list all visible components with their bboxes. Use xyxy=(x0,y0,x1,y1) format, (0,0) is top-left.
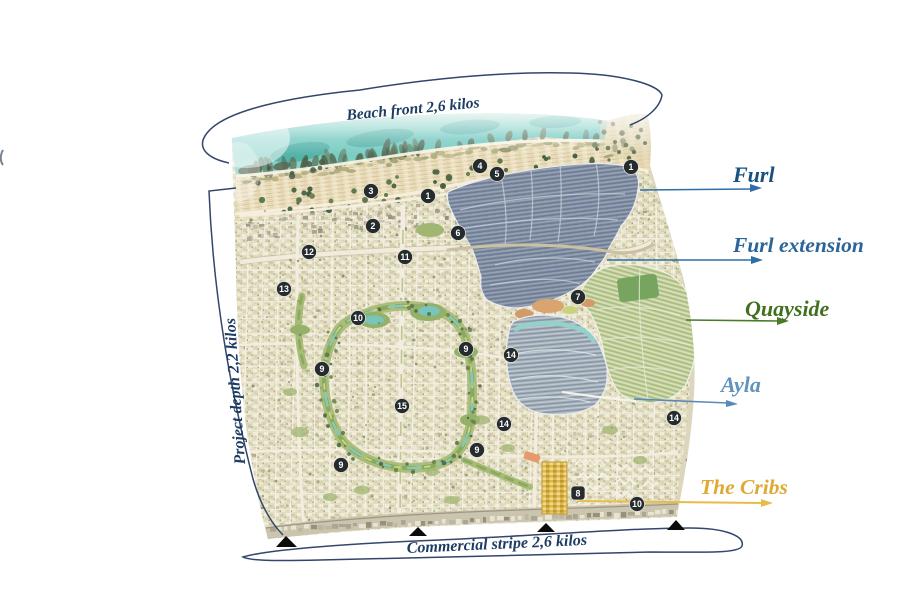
svg-text:14: 14 xyxy=(669,413,679,423)
svg-text:Furl extension: Furl extension xyxy=(732,233,864,257)
svg-text:14: 14 xyxy=(499,419,509,429)
svg-text:12: 12 xyxy=(304,247,314,257)
svg-text:10: 10 xyxy=(632,499,642,509)
svg-text:Commercial stripe 2,6 kilos: Commercial stripe 2,6 kilos xyxy=(406,532,587,557)
svg-text:3: 3 xyxy=(369,186,374,196)
svg-text:4: 4 xyxy=(478,161,483,171)
svg-text:Furl: Furl xyxy=(732,162,775,187)
svg-text:14: 14 xyxy=(506,350,516,360)
svg-text:2: 2 xyxy=(371,221,376,231)
svg-text:13: 13 xyxy=(279,284,289,294)
svg-text:9: 9 xyxy=(320,364,325,374)
svg-text:The Cribs: The Cribs xyxy=(700,475,788,499)
svg-text:11: 11 xyxy=(400,252,409,262)
svg-text:7: 7 xyxy=(576,292,581,302)
svg-text:Quayside: Quayside xyxy=(745,296,830,321)
svg-text:5: 5 xyxy=(495,169,500,179)
svg-text:9: 9 xyxy=(475,445,480,455)
svg-text:1: 1 xyxy=(426,191,431,201)
svg-text:9: 9 xyxy=(464,344,469,354)
svg-text:1: 1 xyxy=(629,162,634,172)
svg-text:10: 10 xyxy=(353,313,363,323)
svg-text:6: 6 xyxy=(456,228,461,238)
svg-text:15: 15 xyxy=(397,401,407,411)
svg-text:9: 9 xyxy=(339,460,344,470)
svg-text:Ayla: Ayla xyxy=(719,372,761,397)
svg-text:8: 8 xyxy=(576,489,581,499)
